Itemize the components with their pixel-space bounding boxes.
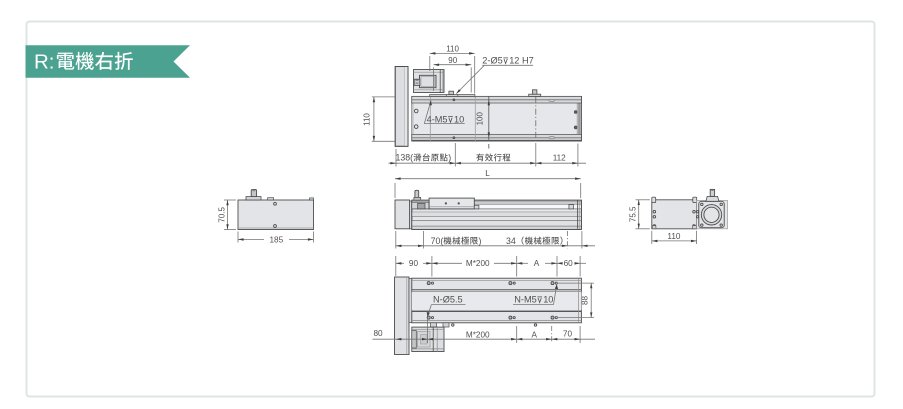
svg-text:10: 10: [454, 114, 464, 124]
svg-text:): ): [448, 153, 451, 163]
svg-text:88: 88: [581, 295, 590, 305]
svg-text:M*200: M*200: [466, 330, 490, 339]
svg-text:90: 90: [409, 259, 419, 268]
svg-text:70: 70: [563, 330, 573, 339]
svg-text:N-Ø5.5: N-Ø5.5: [433, 295, 463, 305]
svg-text:100: 100: [475, 112, 484, 126]
svg-text:2-Ø5: 2-Ø5: [482, 56, 502, 66]
svg-text:138(: 138(: [396, 153, 414, 163]
svg-text:80: 80: [374, 329, 384, 338]
svg-text:60: 60: [564, 259, 574, 268]
svg-text:110: 110: [446, 45, 459, 54]
svg-text:4-M5: 4-M5: [427, 114, 448, 124]
svg-text:N-M5: N-M5: [514, 295, 536, 305]
svg-text:90: 90: [448, 56, 457, 65]
svg-text:L: L: [485, 169, 490, 178]
svg-text:12 H7: 12 H7: [509, 56, 534, 66]
svg-text:34: 34: [506, 236, 516, 246]
svg-text:A: A: [532, 330, 538, 339]
svg-text:R:: R:: [34, 50, 55, 73]
svg-text:10: 10: [543, 295, 553, 305]
svg-text:112: 112: [553, 154, 566, 163]
svg-text:70.5: 70.5: [217, 206, 226, 222]
svg-text:110: 110: [362, 113, 371, 126]
svg-text:70(: 70(: [431, 236, 444, 246]
svg-text:110: 110: [667, 232, 680, 241]
svg-text:75.5: 75.5: [629, 206, 638, 222]
svg-text:A: A: [534, 259, 540, 268]
svg-text:): ): [479, 236, 482, 246]
svg-text:185: 185: [270, 235, 284, 244]
svg-text:M*200: M*200: [466, 259, 490, 268]
